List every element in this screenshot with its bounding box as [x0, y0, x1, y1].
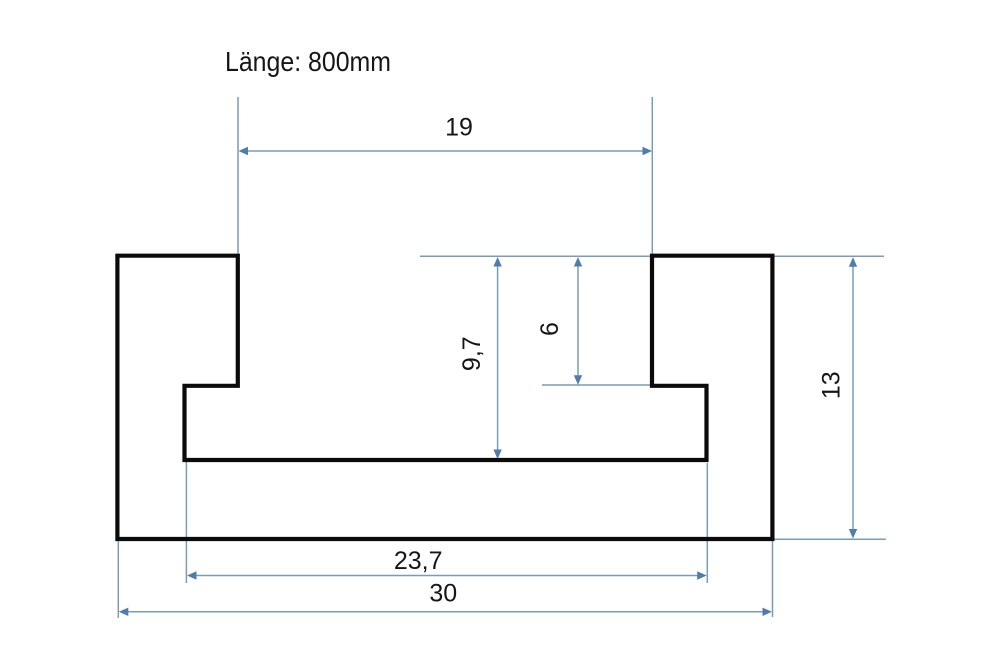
svg-text:9,7: 9,7: [458, 336, 486, 371]
svg-text:19: 19: [445, 113, 473, 141]
svg-text:Länge: 800mm: Länge: 800mm: [225, 46, 391, 77]
svg-text:30: 30: [429, 580, 457, 608]
svg-text:13: 13: [818, 371, 846, 399]
svg-text:23,7: 23,7: [394, 547, 443, 575]
svg-text:6: 6: [536, 322, 564, 336]
